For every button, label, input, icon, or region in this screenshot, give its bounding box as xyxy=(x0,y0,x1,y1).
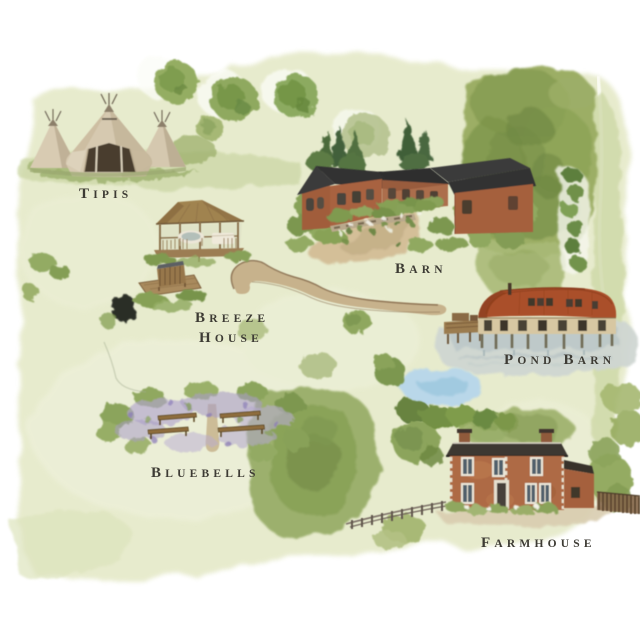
svg-text:BLUEBELLS: BLUEBELLS xyxy=(151,465,260,481)
svg-text:BREEZE: BREEZE xyxy=(195,310,269,326)
svg-text:BARN: BARN xyxy=(395,261,447,277)
svg-text:POND BARN: POND BARN xyxy=(504,352,615,368)
svg-text:HOUSE: HOUSE xyxy=(199,330,263,346)
svg-text:FARMHOUSE: FARMHOUSE xyxy=(481,535,596,551)
svg-text:TIPIS: TIPIS xyxy=(79,186,132,202)
